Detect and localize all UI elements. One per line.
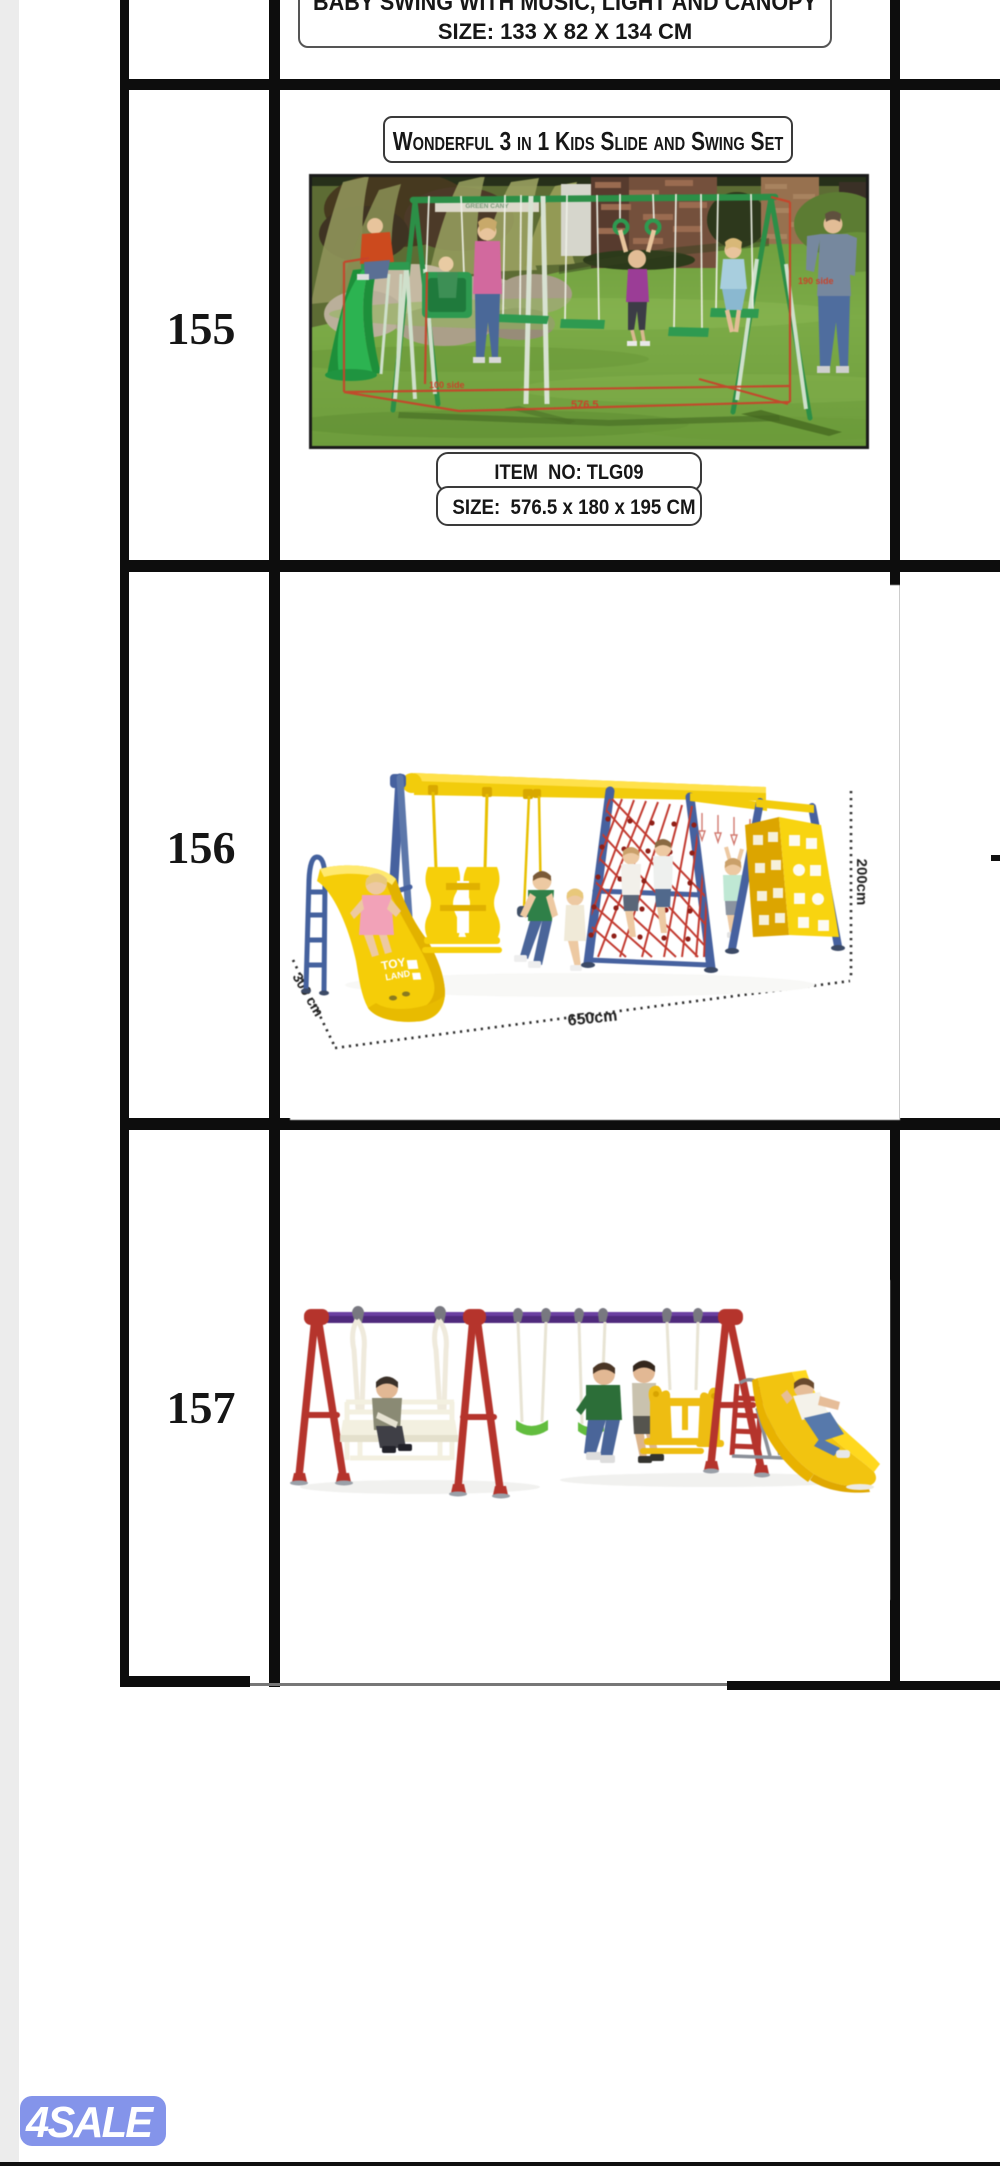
svg-text:100 side: 100 side: [429, 380, 465, 390]
svg-text:GREEN CANY: GREEN CANY: [465, 203, 509, 210]
svg-text:200cm: 200cm: [853, 859, 870, 906]
svg-text:190 side: 190 side: [798, 276, 834, 286]
svg-text:576.5: 576.5: [571, 399, 599, 411]
